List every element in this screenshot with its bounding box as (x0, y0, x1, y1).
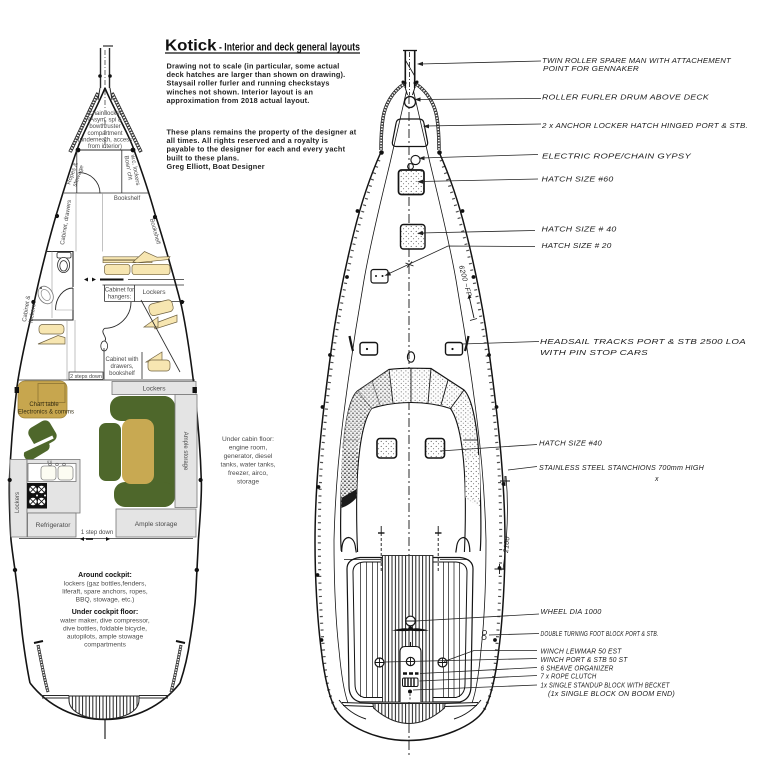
svg-text:ROLLER FURLER DRUM ABOVE DECK: ROLLER FURLER DRUM ABOVE DECK (542, 95, 709, 102)
svg-text:(Asym. spi &: (Asym. spi & (88, 118, 122, 124)
svg-text:lockers (gaz bottles,fenders,: lockers (gaz bottles,fenders, (64, 581, 147, 588)
svg-text:- Interior and deck general la: - Interior and deck general layouts (219, 41, 360, 53)
svg-text:Chain locker: Chain locker (88, 111, 121, 117)
svg-text:HATCH SIZE #40: HATCH SIZE #40 (539, 441, 602, 448)
svg-text:WHEEL DIA 1000: WHEEL DIA 1000 (541, 609, 602, 616)
svg-text:Around cockpit:: Around cockpit: (78, 572, 132, 579)
svg-text:Cabinet for: Cabinet for (105, 288, 134, 294)
svg-text:1x SINGLE STANDUP BLOCK WITH B: 1x SINGLE STANDUP BLOCK WITH BECKET (541, 683, 670, 690)
svg-text:WINCH PORT & STB 50 ST: WINCH PORT & STB 50 ST (541, 657, 628, 664)
svg-text:DOUBLE TURNING FOOT BLOCK PORT: DOUBLE TURNING FOOT BLOCK PORT & STB. (541, 631, 659, 638)
svg-text:freezer, airco,: freezer, airco, (228, 470, 268, 477)
svg-text:compartments: compartments (84, 642, 126, 649)
svg-text:Under cockpit floor:: Under cockpit floor: (72, 609, 139, 616)
svg-text:compartment: compartment (87, 131, 122, 137)
svg-text:Kotick: Kotick (165, 37, 217, 54)
svg-text:Lockers: Lockers (142, 386, 166, 393)
svg-text:from interior): from interior) (88, 144, 122, 150)
svg-text:TWIN ROLLER SPARE MAN WITH ATT: TWIN ROLLER SPARE MAN WITH ATTACHEMENT (542, 58, 732, 65)
svg-text:BBQ, stowage, etc.): BBQ, stowage, etc.) (76, 597, 135, 604)
svg-text:Under cabin floor:: Under cabin floor: (222, 436, 274, 443)
svg-text:WITH PIN STOP CARS: WITH PIN STOP CARS (540, 350, 648, 357)
svg-text:WINCH LEWMAR 50 EST: WINCH LEWMAR 50 EST (541, 649, 622, 656)
svg-text:Electronics & comms: Electronics & comms (18, 410, 74, 416)
svg-text:POINT FOR GENNAKER: POINT FOR GENNAKER (543, 66, 639, 73)
svg-text:HATCH SIZE #60: HATCH SIZE #60 (542, 177, 614, 184)
svg-text:hangers:: hangers: (108, 295, 132, 301)
svg-text:6 SHEAVE ORGANIZER: 6 SHEAVE ORGANIZER (541, 666, 614, 673)
svg-text:Bookshelf: Bookshelf (114, 196, 141, 202)
svg-text:drawers,: drawers, (110, 364, 133, 370)
svg-text:Ample storage: Ample storage (182, 432, 188, 471)
svg-text:ELECTRIC ROPE/CHAIN GYPSY: ELECTRIC ROPE/CHAIN GYPSY (542, 154, 692, 161)
svg-text:(underneath, access: (underneath, access (78, 137, 132, 143)
svg-text:HATCH SIZE # 20: HATCH SIZE # 20 (542, 243, 612, 250)
svg-text:2 steps down: 2 steps down (70, 374, 102, 380)
svg-text:Chart table: Chart table (29, 402, 59, 408)
svg-text:Lockers: Lockers (142, 289, 166, 296)
svg-text:STAINLESS STEEL STANCHIONS 700: STAINLESS STEEL STANCHIONS 700mm HIGH (539, 465, 705, 472)
svg-text:storage: storage (237, 479, 259, 486)
svg-text:1 step down: 1 step down (81, 530, 113, 536)
svg-text:(1x SINGLE BLOCK ON BOOM END): (1x SINGLE BLOCK ON BOOM END) (548, 691, 675, 698)
svg-text:bookshelf: bookshelf (109, 371, 135, 377)
svg-text:Cabinet with: Cabinet with (105, 357, 138, 363)
svg-text:water maker, dive compressor,: water maker, dive compressor, (59, 618, 150, 625)
svg-text:Refrigerator: Refrigerator (36, 522, 72, 529)
svg-text:Lockers: Lockers (15, 492, 21, 513)
svg-text:generator, diesel: generator, diesel (224, 453, 273, 460)
svg-text:tanks, water tanks,: tanks, water tanks, (221, 462, 276, 469)
svg-text:dive bottles, foldable bicycle: dive bottles, foldable bicycle, (63, 626, 147, 633)
svg-text:HATCH SIZE # 40: HATCH SIZE # 40 (542, 227, 617, 234)
svg-text:HEADSAIL TRACKS PORT & STB 250: HEADSAIL TRACKS PORT & STB 2500 LOA (540, 339, 746, 346)
svg-text:x: x (654, 476, 659, 483)
svg-text:engine room,: engine room, (229, 445, 268, 452)
svg-text:liferaft, spare anchors, ropes: liferaft, spare anchors, ropes, (62, 589, 148, 596)
svg-text:Ample storage: Ample storage (135, 521, 178, 528)
svg-text:autopilots, ample stowage: autopilots, ample stowage (67, 634, 144, 641)
svg-text:bowthruster: bowthruster (89, 124, 120, 130)
svg-text:2 x ANCHOR LOCKER HATCH HINGED: 2 x ANCHOR LOCKER HATCH HINGED PORT & ST… (541, 123, 748, 130)
svg-text:7 x ROPE CLUTCH: 7 x ROPE CLUTCH (541, 674, 598, 681)
